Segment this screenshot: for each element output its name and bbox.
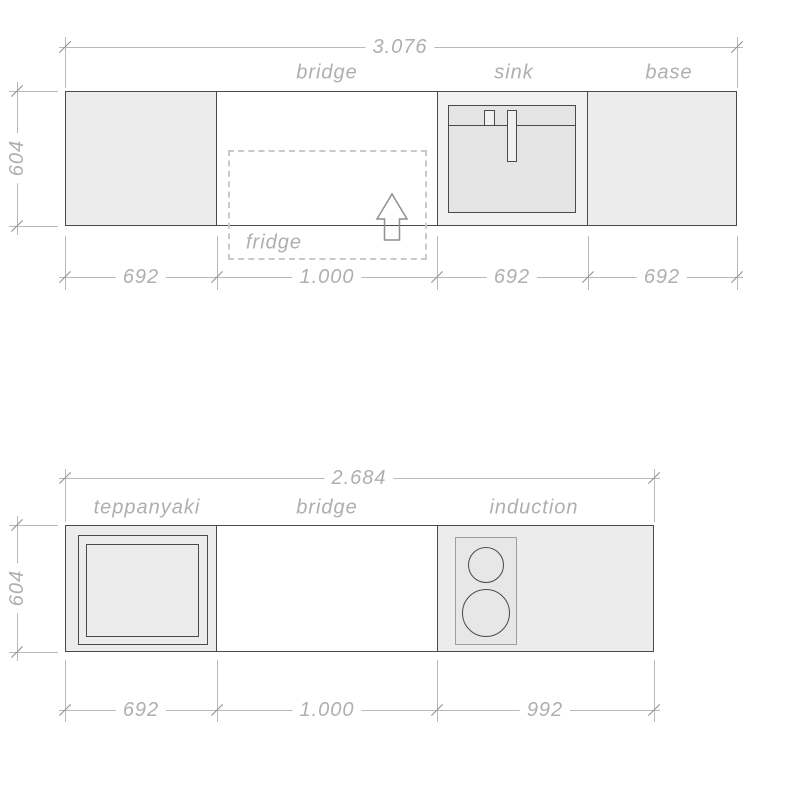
section-label-bridge: bridge	[296, 497, 358, 520]
fridge-label: fridge	[246, 232, 302, 255]
induction-zone-large	[462, 589, 510, 637]
extension-line	[737, 236, 738, 290]
height-dimension: 604	[6, 563, 28, 613]
segment-dimension: 692	[637, 266, 687, 288]
extension-line	[437, 660, 438, 722]
segment-dimension: 692	[116, 699, 166, 721]
induction-zone-small	[468, 547, 504, 583]
extension-line	[217, 660, 218, 722]
extension-line	[588, 236, 589, 290]
extension-line	[217, 236, 218, 290]
height-dimension: 604	[6, 133, 28, 183]
segment-dimension: 1.000	[292, 266, 361, 288]
segment-dimension: 692	[487, 266, 537, 288]
base-cabinet	[587, 91, 737, 226]
section-label-base: base	[645, 62, 692, 85]
extension-line	[654, 660, 655, 722]
sink-control-knob	[484, 110, 495, 126]
extension-line	[437, 236, 438, 290]
overall-width-dimension: 2.684	[324, 467, 393, 489]
segment-dimension: 992	[520, 699, 570, 721]
section-label-induction: induction	[489, 497, 578, 520]
arrow-up-icon	[369, 188, 415, 244]
bridge-opening	[217, 525, 437, 652]
kitchen-plan-drawing: 3.076 bridge sink base fridge 692	[0, 0, 790, 790]
teppanyaki-plate-inner	[86, 544, 199, 637]
extension-line	[65, 660, 66, 722]
section-label-teppanyaki: teppanyaki	[94, 497, 201, 520]
section-label-sink: sink	[494, 62, 534, 85]
overall-width-dimension: 3.076	[365, 36, 434, 58]
extension-line	[65, 236, 66, 290]
segment-dimension: 1.000	[292, 699, 361, 721]
sink-faucet	[507, 110, 517, 162]
section-label-bridge: bridge	[296, 62, 358, 85]
segment-dimension: 692	[116, 266, 166, 288]
cabinet-left	[65, 91, 217, 226]
